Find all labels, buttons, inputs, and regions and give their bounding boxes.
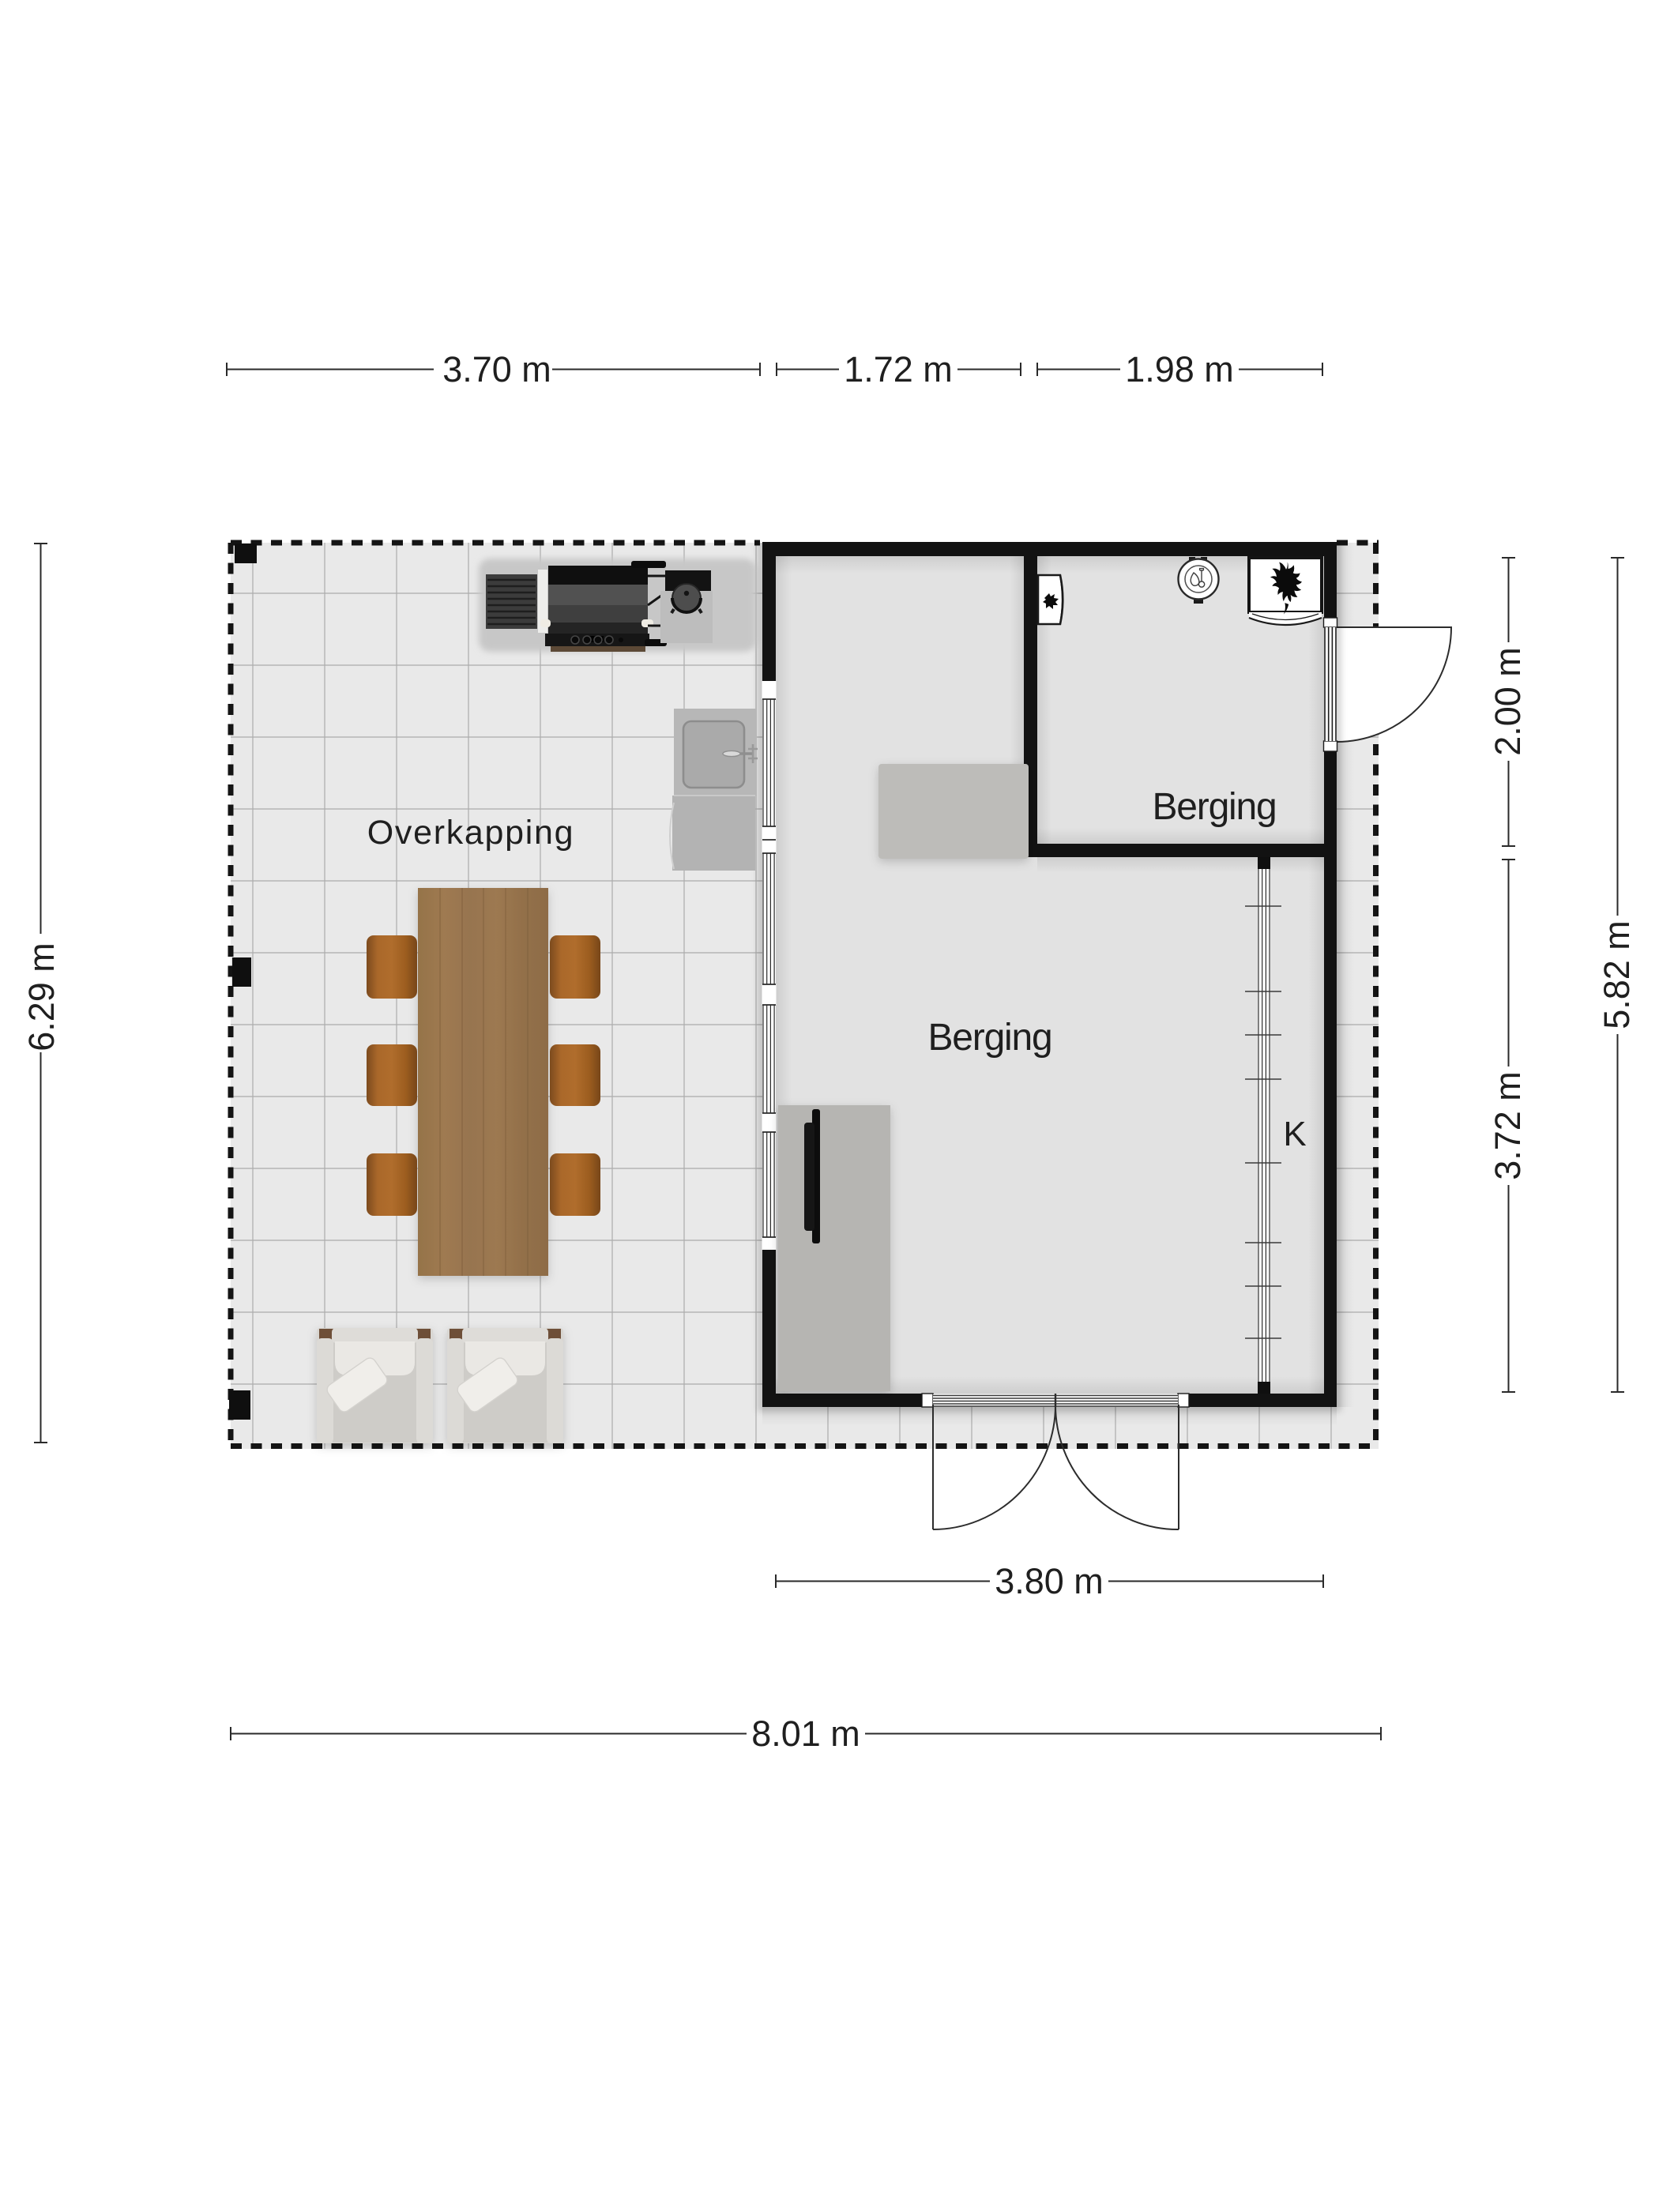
svg-text:Berging: Berging (1152, 786, 1276, 828)
svg-text:2.00 m: 2.00 m (1488, 647, 1528, 756)
svg-text:6.29 m: 6.29 m (21, 942, 62, 1051)
svg-text:3.72 m: 3.72 m (1488, 1071, 1528, 1180)
svg-text:3.80 m: 3.80 m (995, 1561, 1104, 1601)
svg-text:1.72 m: 1.72 m (844, 349, 953, 389)
svg-text:K: K (1283, 1115, 1306, 1153)
svg-text:1.98 m: 1.98 m (1125, 349, 1234, 389)
svg-text:Berging: Berging (927, 1017, 1051, 1059)
svg-text:3.70 m: 3.70 m (442, 349, 551, 389)
svg-text:Overkapping: Overkapping (367, 814, 575, 852)
svg-text:5.82 m: 5.82 m (1597, 920, 1637, 1029)
svg-text:8.01 m: 8.01 m (751, 1714, 860, 1754)
